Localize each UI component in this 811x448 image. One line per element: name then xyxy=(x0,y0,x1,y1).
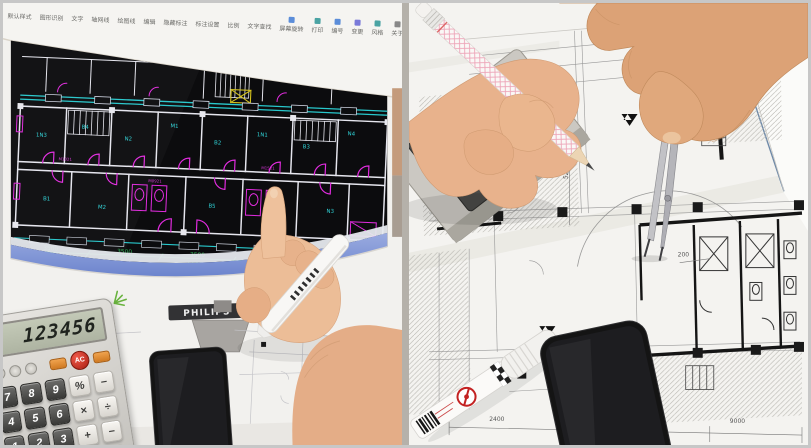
svg-text:2400: 2400 xyxy=(489,416,504,423)
right-photo-scene: 2400 30700 9000 5200 2000 200 0 0 xyxy=(409,3,808,445)
thumb xyxy=(236,288,270,323)
left-photo: 1N3 B4 N2 M1 B2 1N1 B3 N4 B1 M2 B5 N3 xyxy=(3,3,402,445)
photo-collage-frame: 1N3 B4 N2 M1 B2 1N1 B3 N4 B1 M2 B5 N3 xyxy=(0,0,811,448)
svg-text:200: 200 xyxy=(678,252,690,259)
fingernail xyxy=(270,188,278,198)
right-photo: 2400 30700 9000 5200 2000 200 0 0 xyxy=(409,3,808,445)
svg-text:9000: 9000 xyxy=(730,418,745,425)
collage-divider xyxy=(402,3,409,445)
left-hand-overlay xyxy=(3,3,402,445)
thumbnail xyxy=(663,132,681,144)
